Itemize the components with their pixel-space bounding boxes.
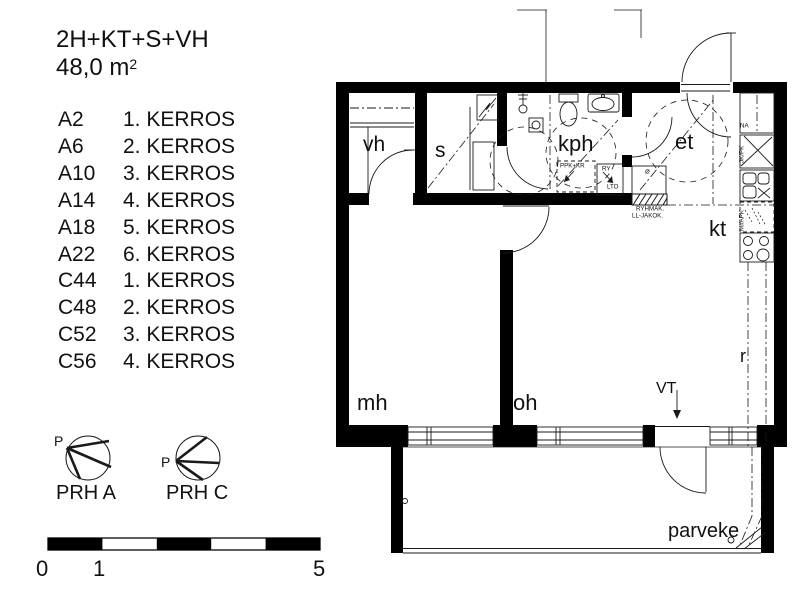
- vt-label: VT: [656, 381, 676, 397]
- north-label-a: P: [54, 434, 63, 448]
- room-label-r: r: [740, 347, 746, 365]
- kph-door-arc: [632, 117, 672, 157]
- room-label-kt: kt: [709, 218, 726, 240]
- sink-icon: [588, 94, 619, 112]
- room-label-kph: kph: [558, 133, 593, 155]
- room-label-parveke: parveke: [668, 521, 739, 541]
- toilet-icon: [559, 94, 578, 102]
- ry-label: RY: [602, 166, 611, 172]
- entrance-door-arc-out: [682, 33, 731, 82]
- compass-c-icon: [176, 436, 220, 480]
- north-label-c: P: [161, 455, 170, 469]
- sauna-bench: [473, 142, 494, 190]
- compass-a-icon: [66, 436, 111, 480]
- panel-symbol: ⌀: [645, 168, 650, 176]
- room-label-vh: vh: [363, 134, 385, 155]
- ll-jakok-label: LL-JAKOK.: [632, 213, 663, 219]
- dishwasher-label: MI/APK: [739, 210, 745, 231]
- apartment-area: 48,0 m2: [56, 56, 137, 80]
- list-item: A185. KERROS: [58, 215, 235, 242]
- list-item: A226. KERROS: [58, 242, 235, 269]
- balcony-door-arc: [660, 447, 706, 493]
- washer-label: PPK+KR: [560, 163, 585, 169]
- list-item: A144. KERROS: [58, 188, 235, 215]
- compass-c-label: PRH C: [166, 483, 228, 503]
- area-superscript: 2: [129, 56, 137, 72]
- list-item: C564. KERROS: [58, 349, 235, 376]
- entrance-door-arc-in: [687, 93, 731, 137]
- room-label-s: s: [435, 140, 446, 161]
- area-value: 48,0 m: [56, 54, 129, 81]
- balcony-drain-icon: [403, 499, 408, 504]
- list-item: A103. KERROS: [58, 161, 235, 188]
- room-label-mh: mh: [357, 392, 388, 414]
- floorplan-page: 2H+KT+S+VH 48,0 m2 A21. KERROS A62. KERR…: [0, 0, 800, 600]
- scale-start-label: 0: [36, 558, 48, 580]
- list-item: A21. KERROS: [58, 107, 235, 134]
- list-item: C441. KERROS: [58, 268, 235, 295]
- scale-bar: [48, 538, 320, 550]
- list-item: C482. KERROS: [58, 295, 235, 322]
- hatched-wall: [632, 194, 667, 205]
- room-door-arc: [503, 207, 549, 253]
- fridge-label: JK/PK: [739, 146, 745, 163]
- sauna-door-arc: [507, 147, 548, 189]
- room-label-oh: oh: [513, 392, 537, 414]
- list-item: C523. KERROS: [58, 322, 235, 349]
- scale-end-label: 5: [313, 558, 325, 580]
- compass-a-label: PRH A: [56, 483, 116, 503]
- page-title: 2H+KT+S+VH: [56, 28, 209, 52]
- na-label: NA: [740, 123, 749, 129]
- lto-label: LTO: [607, 184, 618, 190]
- scale-mid-label: 1: [93, 558, 105, 580]
- vh-door-arc: [369, 150, 413, 194]
- ryhmak-label: RYHMÄK.: [636, 206, 664, 212]
- apartment-list: A21. KERROS A62. KERROS A103. KERROS A14…: [58, 107, 235, 376]
- list-item: A62. KERROS: [58, 134, 235, 161]
- floor-drain-icon: [529, 118, 543, 132]
- room-label-et: et: [675, 131, 693, 153]
